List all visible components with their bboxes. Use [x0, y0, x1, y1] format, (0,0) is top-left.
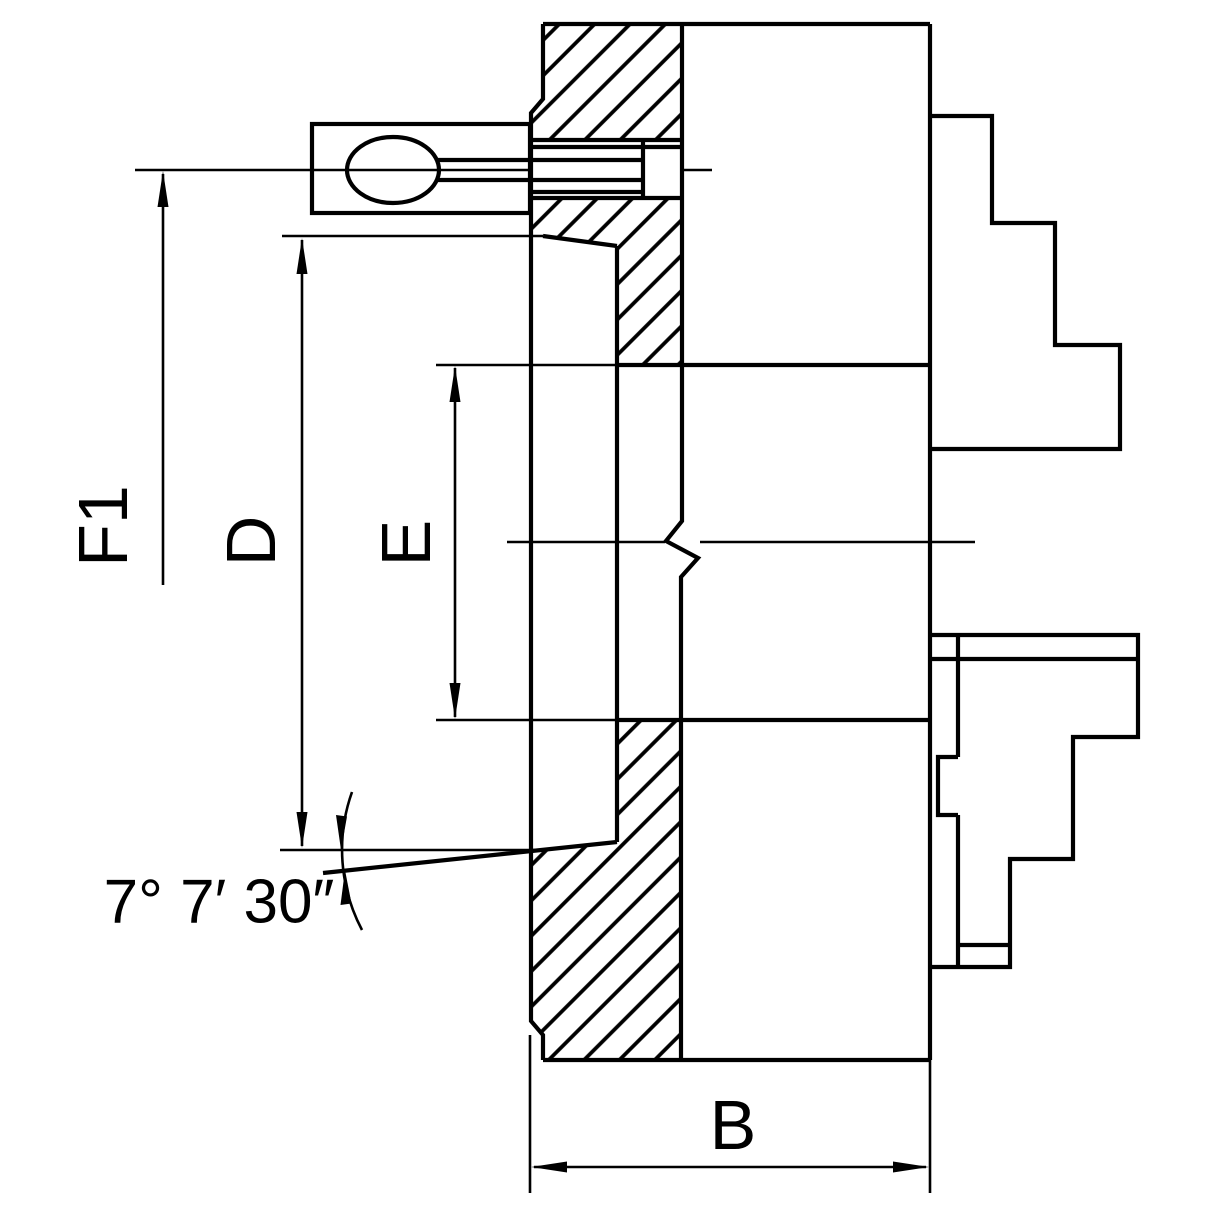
top-jaw [930, 116, 1120, 449]
chuck-cross-section-drawing: F1 D E B 7° 7′ 30″ [0, 0, 1214, 1214]
taper-angle-label: 7° 7′ 30″ [104, 868, 335, 937]
angle-dimension: 7° 7′ 30″ [104, 792, 362, 937]
flange-hatch-middle [531, 198, 680, 365]
f1-arrowhead-up [158, 171, 169, 207]
key-handle-outline [312, 124, 530, 213]
flange-hatch-top [531, 26, 680, 140]
d-arrowhead-down [297, 812, 308, 848]
flange-hatch-bottom [531, 720, 680, 1058]
top-jaw-outline [930, 116, 1120, 449]
e-arrowhead-down [450, 683, 461, 719]
bottom-jaw-outline [930, 635, 1138, 967]
d-label: D [212, 516, 290, 567]
key-socket-slot [530, 140, 682, 198]
angle-arrowhead-bottom [341, 870, 352, 905]
e-label: E [367, 520, 445, 567]
b-arrowhead-left [531, 1162, 567, 1173]
b-arrowhead-right [893, 1162, 929, 1173]
b-label: B [710, 1086, 757, 1164]
dimension-f1: F1 [64, 171, 169, 585]
drawing-canvas: F1 D E B 7° 7′ 30″ [0, 0, 1214, 1214]
e-arrowhead-up [450, 366, 461, 402]
angle-arrowhead-top [336, 815, 347, 850]
d-arrowhead-up [297, 238, 308, 274]
f1-label: F1 [64, 485, 142, 567]
angle-arc [342, 792, 362, 930]
bottom-jaw-details [938, 635, 1010, 967]
bottom-jaw [930, 635, 1138, 967]
